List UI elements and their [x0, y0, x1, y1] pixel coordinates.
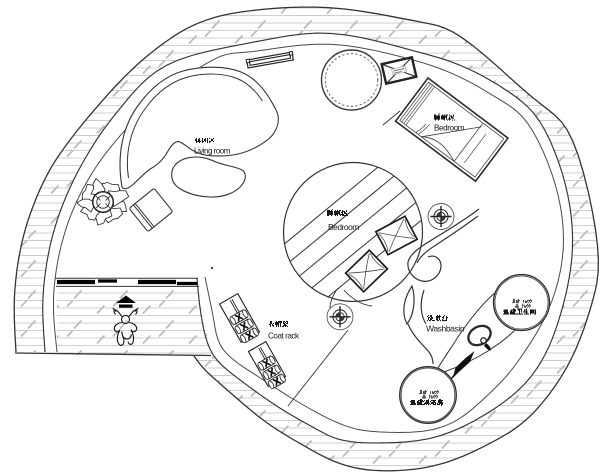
- svg-text:Bedroom: Bedroom: [434, 124, 465, 133]
- svg-text:Washbasin: Washbasin: [426, 324, 465, 334]
- svg-text:Coat rack: Coat rack: [268, 332, 300, 341]
- svg-text:Living room: Living room: [194, 147, 231, 156]
- svg-text:Bedroom: Bedroom: [328, 222, 359, 232]
